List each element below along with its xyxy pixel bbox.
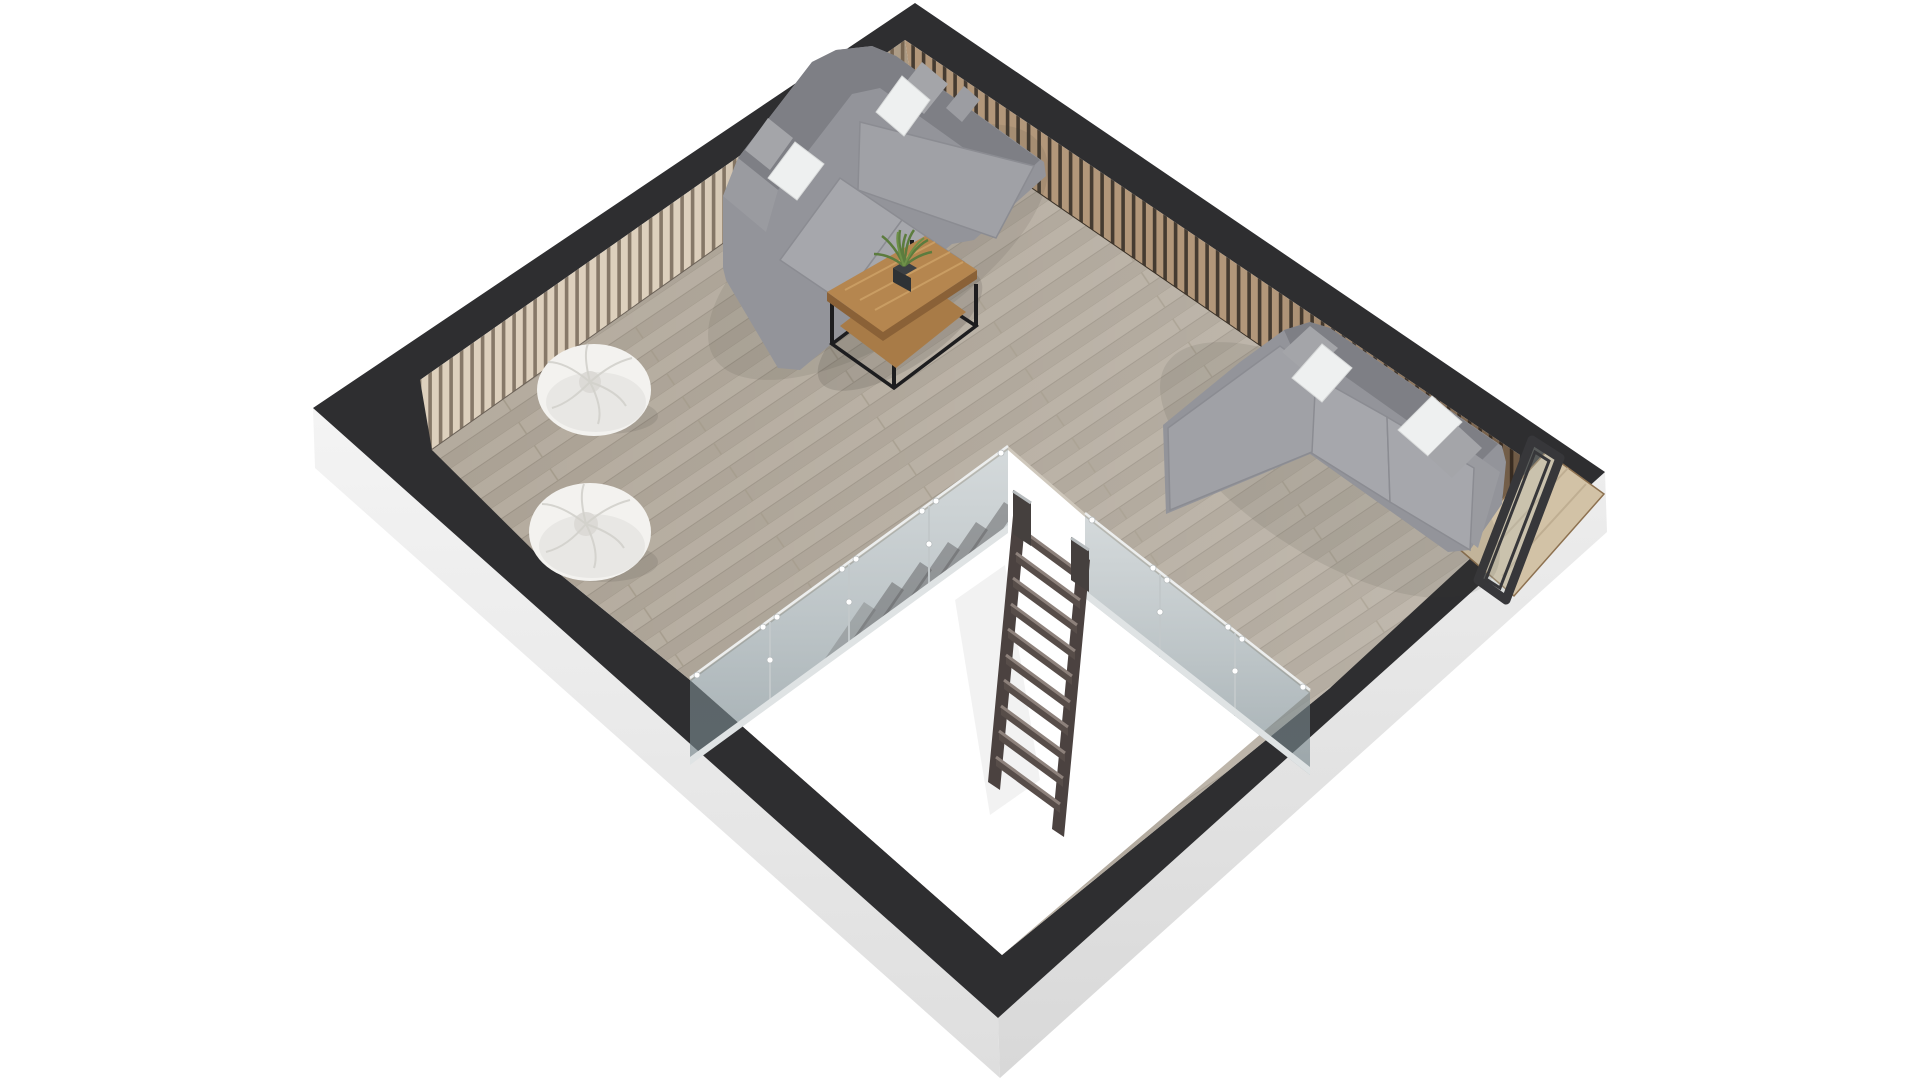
beanbag-2 [529,483,651,581]
floor-plan-svg [0,0,1920,1080]
beanbag-1 [537,344,651,436]
floor-plan-render [0,0,1920,1080]
